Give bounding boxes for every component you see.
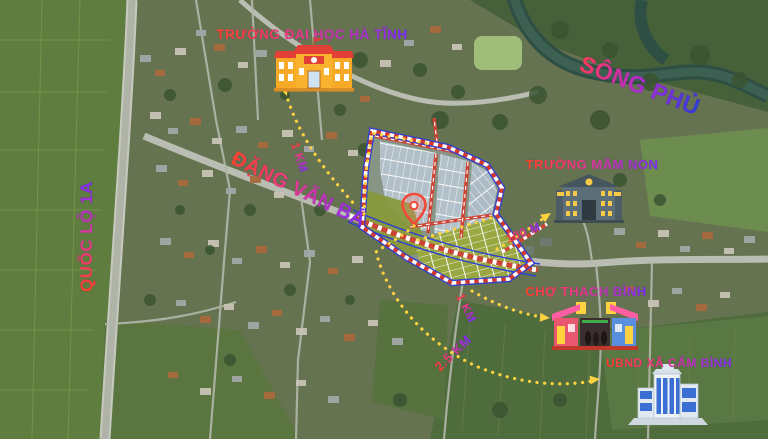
market-label: CHỢ THẠCH BÌNH <box>525 284 646 299</box>
kindergarten-label: TRƯỜNG MẦM NON <box>526 157 659 172</box>
highway-label: QUỐC LỘ 1A <box>76 181 96 292</box>
satellite-map: TRƯỜNG ĐẠI HỌC HÀ TĨNH SÔNG PHỦ QUỐC LỘ … <box>0 0 768 439</box>
university-label: TRƯỜNG ĐẠI HỌC HÀ TĨNH <box>216 27 407 42</box>
pond <box>474 36 522 70</box>
committee-label: UBND XÃ CẨM BÌNH <box>606 355 732 370</box>
